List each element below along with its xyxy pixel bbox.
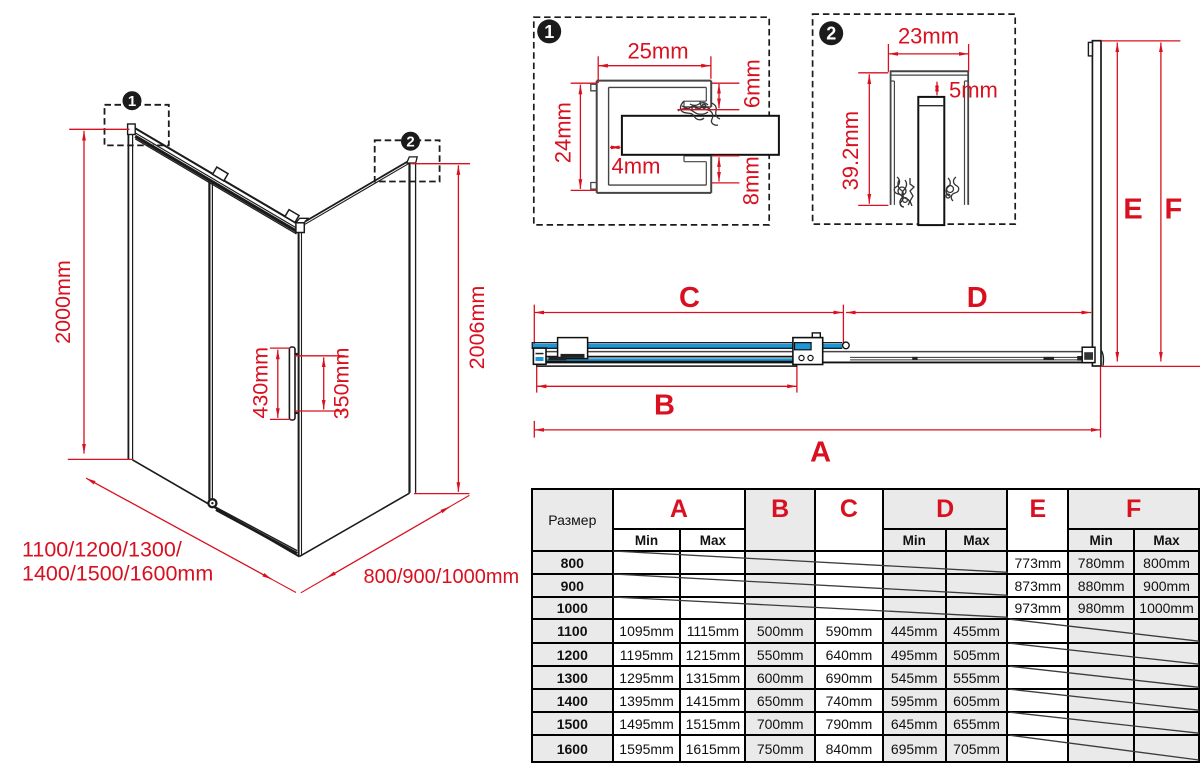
svg-text:5mm: 5mm [949, 78, 998, 103]
svg-text:24mm: 24mm [550, 102, 575, 163]
svg-text:E: E [1123, 194, 1142, 226]
svg-text:1: 1 [128, 93, 136, 110]
svg-text:8mm: 8mm [739, 156, 764, 205]
svg-text:430mm: 430mm [249, 347, 273, 419]
svg-text:D: D [967, 282, 988, 314]
svg-text:800/900/1000mm: 800/900/1000mm [364, 566, 520, 588]
svg-text:B: B [654, 390, 675, 422]
svg-text:C: C [679, 282, 700, 314]
svg-text:39.2mm: 39.2mm [838, 111, 863, 190]
svg-text:1100/1200/1300/: 1100/1200/1300/ [22, 538, 182, 562]
svg-text:F: F [1164, 194, 1182, 226]
svg-text:A: A [810, 437, 831, 469]
svg-text:2: 2 [406, 134, 414, 151]
svg-text:2000mm: 2000mm [51, 260, 75, 344]
svg-text:350mm: 350mm [330, 348, 354, 420]
svg-text:6mm: 6mm [739, 59, 764, 108]
svg-text:2: 2 [826, 24, 836, 44]
svg-text:1400/1500/1600mm: 1400/1500/1600mm [22, 561, 213, 585]
svg-text:2006mm: 2006mm [465, 286, 489, 370]
svg-text:23mm: 23mm [898, 23, 959, 48]
svg-text:4mm: 4mm [612, 153, 661, 178]
svg-text:25mm: 25mm [627, 38, 688, 63]
svg-text:1: 1 [544, 22, 554, 42]
